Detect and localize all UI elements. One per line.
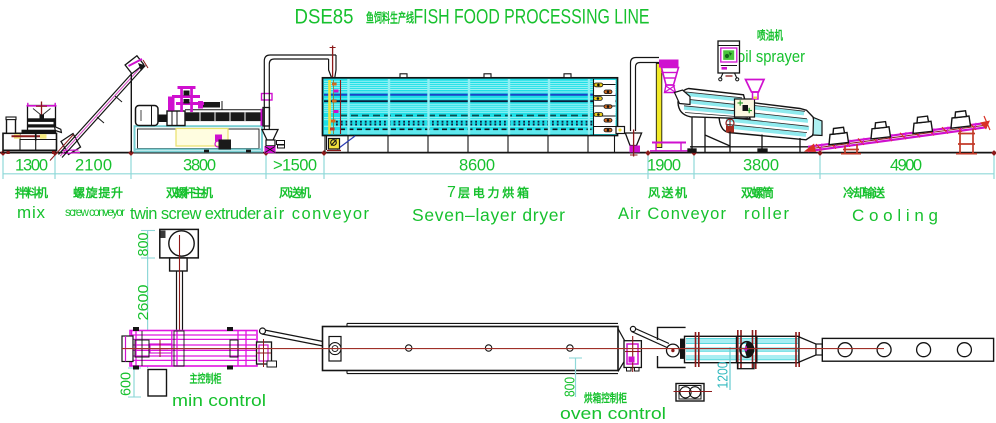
svg-text:air conveyor: air conveyor [263, 205, 370, 223]
svg-text:min control: min control [172, 391, 266, 410]
svg-text:主控制柜: 主控制柜 [190, 372, 222, 386]
svg-text:7: 7 [447, 184, 456, 201]
svg-text:双螺筒: 双螺筒 [741, 185, 774, 200]
svg-text:双螺杆主机: 双螺杆主机 [166, 185, 213, 200]
svg-text:3800: 3800 [743, 157, 779, 175]
svg-text:FISH FOOD PROCESSING LINE: FISH FOOD PROCESSING LINE [414, 6, 650, 29]
svg-text:800: 800 [562, 377, 579, 397]
svg-text:DSE85: DSE85 [295, 6, 354, 29]
svg-text:风送机: 风送机 [279, 185, 311, 200]
svg-text:mix: mix [17, 203, 46, 222]
svg-text:喷油机: 喷油机 [757, 28, 783, 43]
svg-text:4900: 4900 [890, 157, 922, 175]
svg-text:8600: 8600 [459, 157, 495, 175]
svg-text:oven control: oven control [560, 404, 666, 423]
svg-text:600: 600 [117, 372, 134, 396]
svg-text:3800: 3800 [183, 157, 216, 175]
svg-text:Air Conveyor: Air Conveyor [618, 205, 727, 223]
svg-text:拌料机: 拌料机 [15, 185, 48, 200]
svg-text:1200: 1200 [715, 362, 732, 389]
svg-text:螺旋提升: 螺旋提升 [73, 185, 123, 200]
svg-text:鱼饲料生产线: 鱼饲料生产线 [366, 11, 414, 26]
svg-text:Seven–layer dryer: Seven–layer dryer [412, 205, 565, 225]
svg-text:screw conveyor: screw conveyor [65, 207, 125, 219]
svg-text:2100: 2100 [75, 157, 112, 175]
svg-text:1900: 1900 [647, 157, 681, 175]
svg-text:twin screw extruder: twin screw extruder [130, 205, 262, 223]
svg-text:层电力烘箱: 层电力烘箱 [458, 185, 529, 200]
svg-text:冷却输送: 冷却输送 [843, 185, 886, 200]
svg-text:roller: roller [744, 205, 790, 223]
svg-text:1300: 1300 [15, 157, 48, 175]
svg-text:>1500: >1500 [273, 157, 317, 175]
svg-text:oil sprayer: oil sprayer [737, 47, 805, 66]
svg-text:800: 800 [135, 233, 152, 257]
svg-text:2600: 2600 [135, 285, 152, 321]
svg-text:烘箱控制柜: 烘箱控制柜 [584, 391, 627, 405]
svg-text:风送机: 风送机 [648, 185, 687, 200]
